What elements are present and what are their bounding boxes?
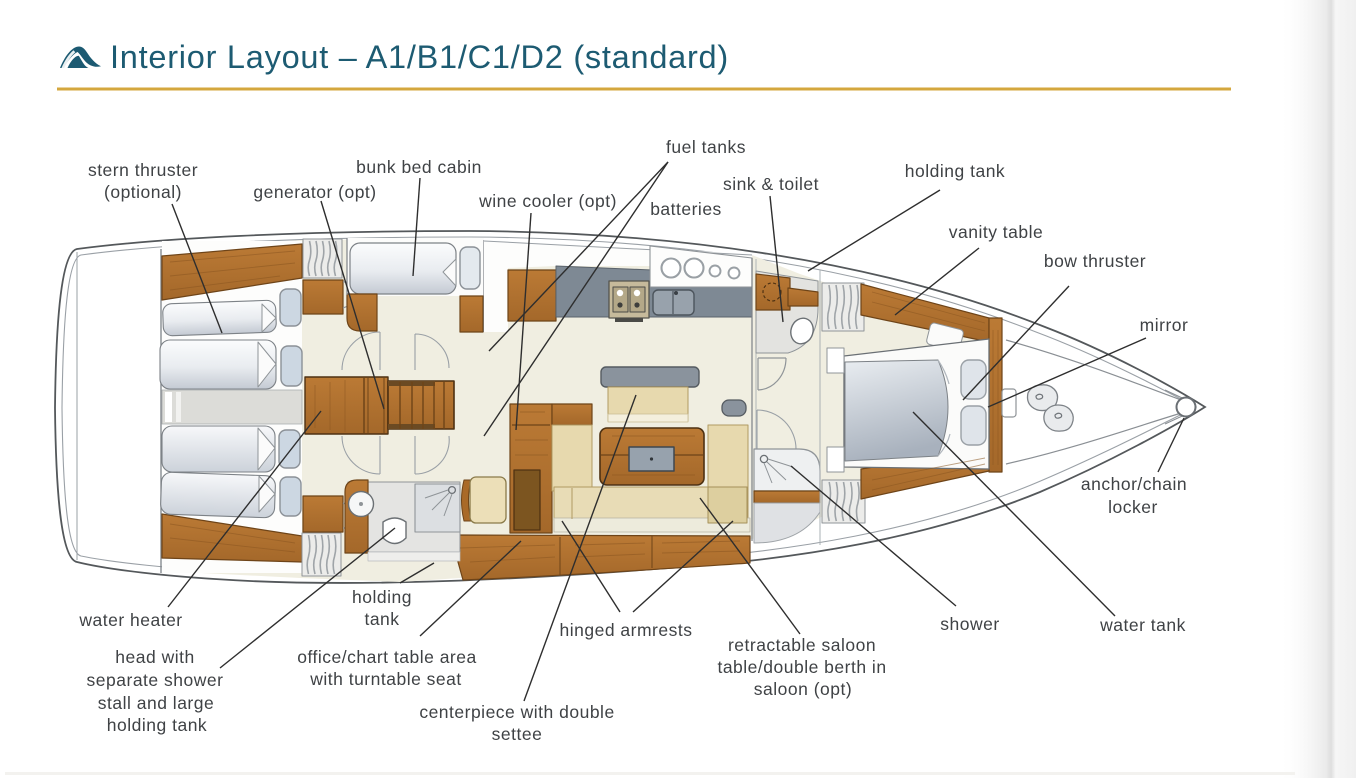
svg-text:bunk bed cabin: bunk bed cabin	[356, 157, 482, 177]
svg-text:centerpiece with double: centerpiece with double	[419, 702, 614, 722]
svg-text:holding tank: holding tank	[905, 161, 1005, 181]
svg-text:shower: shower	[940, 614, 999, 634]
svg-text:tank: tank	[364, 609, 399, 629]
svg-text:water tank: water tank	[1099, 615, 1186, 635]
svg-text:separate shower: separate shower	[87, 670, 224, 690]
svg-text:retractable saloon: retractable saloon	[728, 635, 876, 655]
svg-text:locker: locker	[1108, 497, 1158, 517]
svg-text:wine cooler (opt): wine cooler (opt)	[478, 191, 617, 211]
svg-text:bow thruster: bow thruster	[1044, 251, 1146, 271]
svg-text:mirror: mirror	[1140, 315, 1189, 335]
svg-text:stern thruster: stern thruster	[88, 160, 198, 180]
svg-text:hinged armrests: hinged armrests	[560, 620, 693, 640]
svg-text:vanity table: vanity table	[949, 222, 1044, 242]
svg-text:stall and large: stall and large	[98, 693, 214, 713]
svg-text:table/double berth in: table/double berth in	[717, 657, 886, 677]
svg-text:sink & toilet: sink & toilet	[723, 174, 819, 194]
svg-text:fuel tanks: fuel tanks	[666, 137, 746, 157]
svg-text:head with: head with	[115, 647, 194, 667]
svg-text:office/chart table area: office/chart table area	[297, 647, 476, 667]
svg-text:(optional): (optional)	[104, 182, 182, 202]
svg-text:anchor/chain: anchor/chain	[1081, 474, 1187, 494]
svg-text:water heater: water heater	[78, 610, 182, 630]
svg-text:saloon (opt): saloon (opt)	[754, 679, 852, 699]
svg-text:Interior Layout – A1/B1/C1/D2: Interior Layout – A1/B1/C1/D2 (standard)	[110, 39, 729, 75]
svg-text:holding: holding	[352, 587, 412, 607]
svg-text:with turntable seat: with turntable seat	[309, 669, 462, 689]
svg-text:holding tank: holding tank	[107, 715, 207, 735]
svg-text:settee: settee	[492, 724, 543, 744]
svg-text:batteries: batteries	[650, 199, 722, 219]
svg-text:generator (opt): generator (opt)	[253, 182, 376, 202]
